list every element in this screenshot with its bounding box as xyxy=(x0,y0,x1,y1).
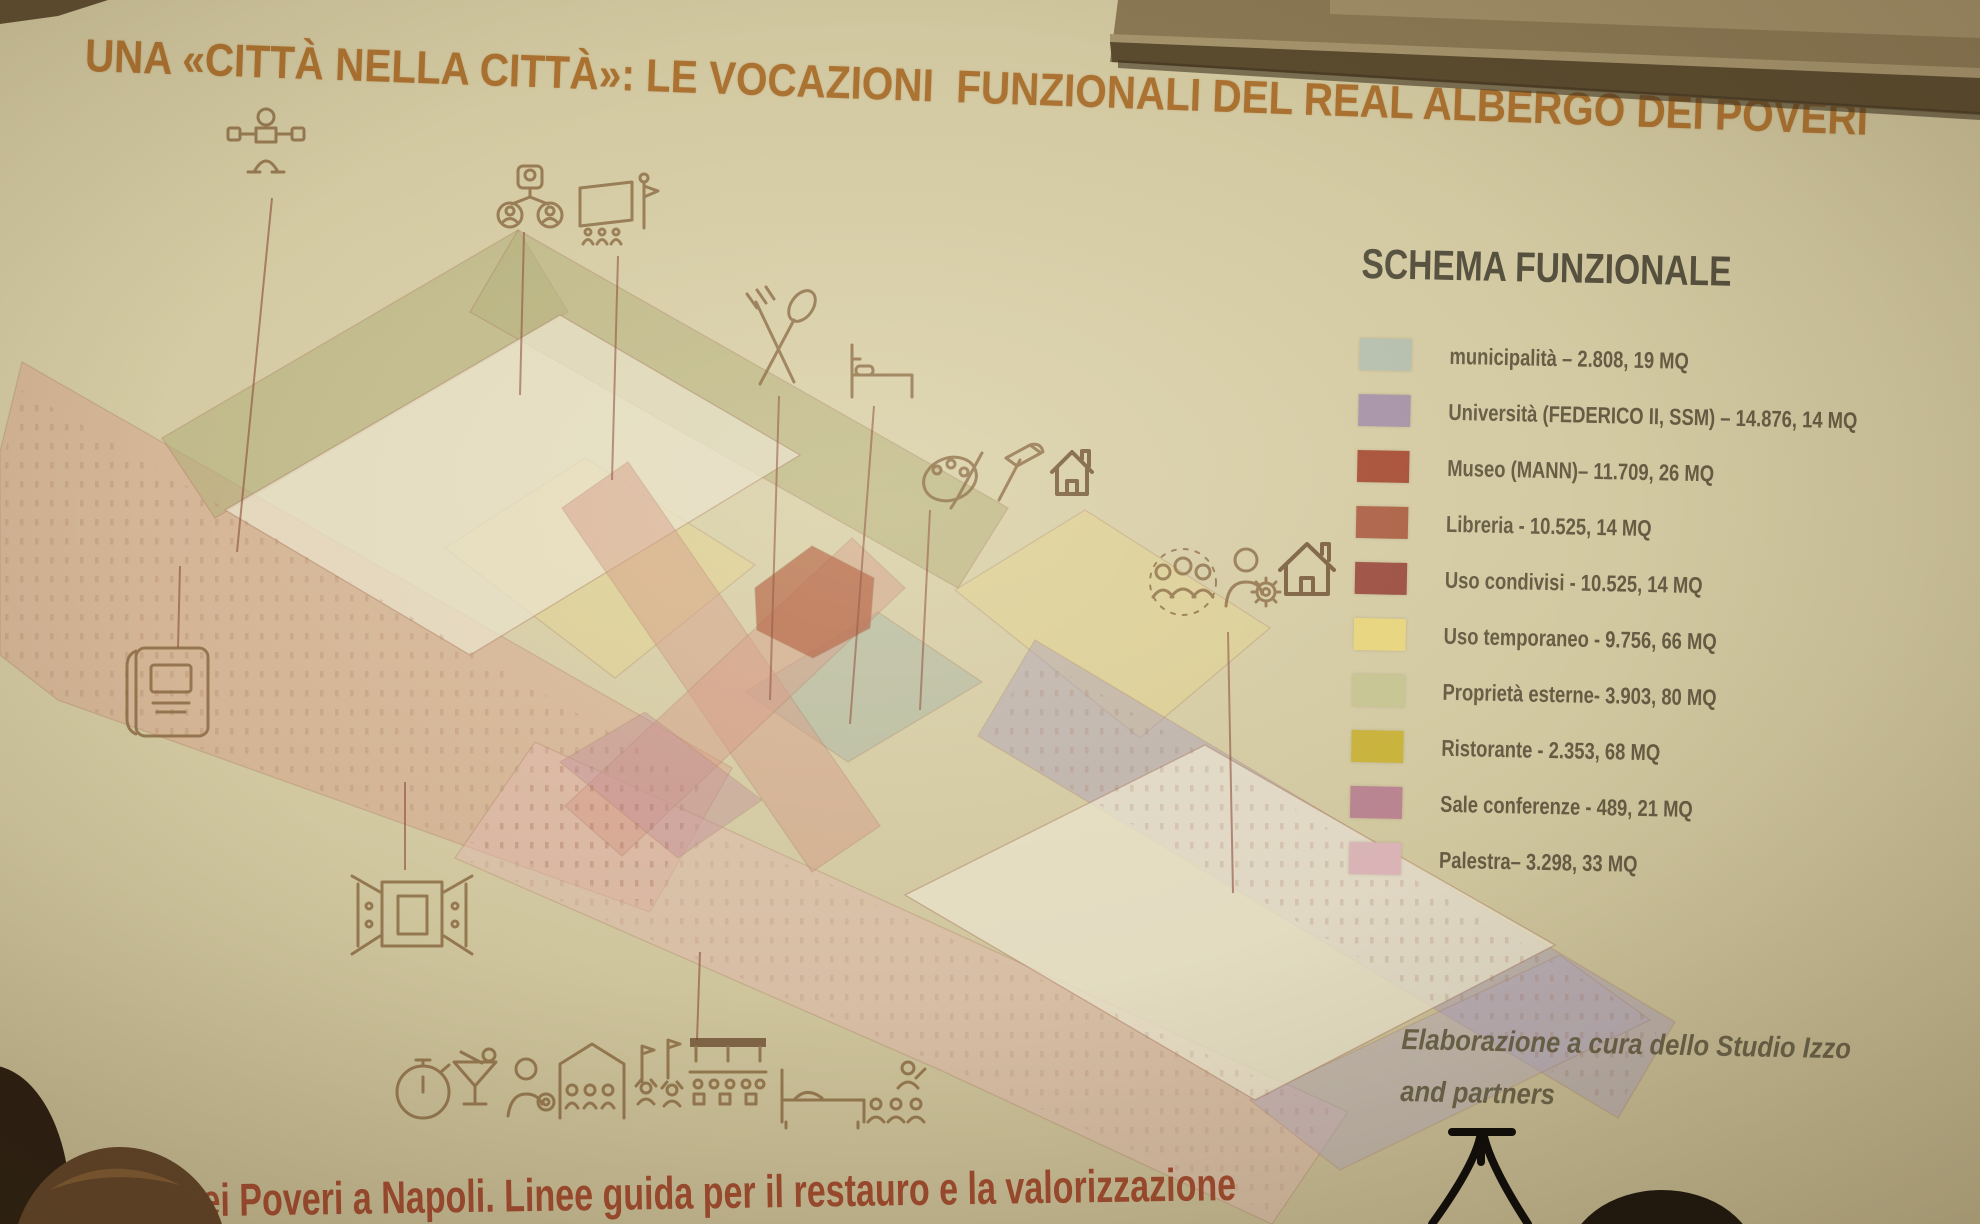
tripod-stand xyxy=(1432,1132,1528,1224)
photo-foreground xyxy=(0,0,1980,1224)
wall-band-top xyxy=(1110,0,1980,120)
photo-of-projected-slide: UNA «CITTÀ NELLA CITTÀ»: LE VOCAZIONI FU… xyxy=(0,0,1980,1224)
corner-wedge-top-left xyxy=(0,0,108,24)
audience-head-right xyxy=(1567,1190,1757,1224)
